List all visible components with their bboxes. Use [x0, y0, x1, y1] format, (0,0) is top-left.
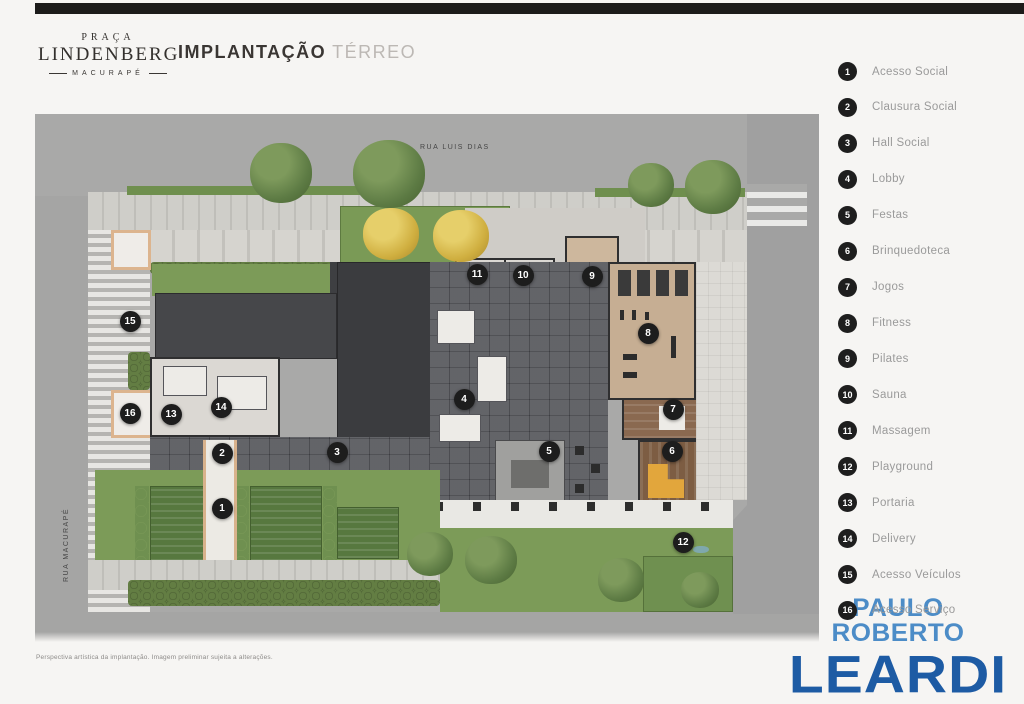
- legend-label: Jogos: [872, 281, 904, 293]
- legend-item-8: 8Fitness: [838, 314, 911, 333]
- gym-equipment: [645, 312, 649, 320]
- legend-label: Portaria: [872, 497, 915, 509]
- hedge-bottom: [128, 580, 440, 606]
- legend-item-14: 14Delivery: [838, 529, 916, 548]
- legend-item-3: 3Hall Social: [838, 134, 930, 153]
- tree-icon: [598, 558, 644, 602]
- brand-line2: LINDENBERG: [38, 44, 178, 66]
- legend-item-7: 7Jogos: [838, 278, 904, 297]
- tree-icon: [250, 143, 312, 203]
- page-title-secondary: TÉRREO: [332, 42, 416, 62]
- brand-rule-left: [49, 73, 67, 74]
- legend-label: Playground: [872, 461, 933, 473]
- legend-label: Acesso Serviço: [872, 604, 955, 616]
- legend-item-12: 12Playground: [838, 457, 933, 476]
- page-title: IMPLANTAÇÃOTÉRREO: [178, 42, 416, 63]
- legend-label: Acesso Social: [872, 66, 948, 78]
- gate-north: [111, 230, 151, 270]
- legend-number-badge: 5: [838, 206, 857, 225]
- legend-number-badge: 4: [838, 170, 857, 189]
- legend-item-4: 4Lobby: [838, 170, 905, 189]
- tree-icon: [628, 163, 674, 207]
- garden-bed: [150, 486, 205, 562]
- legend-number-badge: 10: [838, 385, 857, 404]
- legend-label: Acesso Veículos: [872, 569, 961, 581]
- plan-marker-5: 5: [539, 441, 560, 462]
- legend-number-badge: 3: [838, 134, 857, 153]
- entry-plaza: [150, 437, 430, 470]
- pergola-colonnade: [435, 500, 733, 528]
- brand-line3-text: MACURAPÉ: [72, 70, 144, 77]
- plaza-room-b: [477, 356, 507, 402]
- water-feature: [693, 546, 709, 553]
- plan-marker-7: 7: [663, 399, 684, 420]
- legend-number-badge: 1: [838, 62, 857, 81]
- gym-mat: [675, 270, 688, 296]
- tree-icon: [433, 210, 489, 262]
- brand-rule-right: [149, 73, 167, 74]
- crosswalk: [747, 184, 807, 226]
- gym-equipment: [623, 372, 637, 378]
- legend-item-11: 11Massagem: [838, 421, 931, 440]
- legend-number-badge: 14: [838, 529, 857, 548]
- garden-bush-row: [235, 486, 249, 562]
- development-logo: PRAÇA LINDENBERG MACURAPÉ: [38, 32, 178, 77]
- top-accent-bar: [35, 3, 1024, 14]
- gym-mat: [656, 270, 669, 296]
- legend-label: Hall Social: [872, 137, 930, 149]
- garden-bush-row: [135, 486, 149, 562]
- plan-marker-15: 15: [120, 311, 141, 332]
- plan-marker-3: 3: [327, 442, 348, 463]
- legend-item-10: 10Sauna: [838, 385, 907, 404]
- plan-marker-4: 4: [454, 389, 475, 410]
- garden-bed: [337, 507, 399, 559]
- page-title-primary: IMPLANTAÇÃO: [178, 42, 326, 62]
- tree-icon: [363, 208, 419, 260]
- legend-label: Lobby: [872, 173, 905, 185]
- legend-number-badge: 12: [838, 457, 857, 476]
- legend-item-9: 9Pilates: [838, 349, 909, 368]
- legend-label: Sauna: [872, 389, 907, 401]
- brand-line1: PRAÇA: [38, 32, 178, 43]
- plan-marker-12: 12: [673, 532, 694, 553]
- plan-marker-9: 9: [582, 266, 603, 287]
- festas-table: [591, 464, 600, 473]
- plaza-room-c: [439, 414, 481, 442]
- festas-table: [575, 484, 584, 493]
- brand-line3: MACURAPÉ: [38, 70, 178, 77]
- plan-bottom-fade: [35, 632, 819, 642]
- garden-bed: [250, 486, 322, 562]
- legend-item-16: 16Acesso Serviço: [838, 601, 955, 620]
- legend-number-badge: 6: [838, 242, 857, 261]
- plan-marker-2: 2: [212, 443, 233, 464]
- festas-table: [575, 446, 584, 455]
- plan-marker-6: 6: [662, 441, 683, 462]
- legend-item-1: 1Acesso Social: [838, 62, 948, 81]
- disclaimer-text: Perspectiva artística da implantação. Im…: [36, 654, 273, 661]
- plan-marker-1: 1: [212, 498, 233, 519]
- east-walkway: [696, 262, 747, 500]
- plan-marker-8: 8: [638, 323, 659, 344]
- tree-icon: [407, 532, 453, 576]
- portaria-room: [163, 366, 207, 396]
- legend-number-badge: 11: [838, 421, 857, 440]
- plan-marker-13: 13: [161, 404, 182, 425]
- tree-icon: [465, 536, 517, 584]
- gym-equipment: [620, 310, 624, 320]
- legend-item-5: 5Festas: [838, 206, 908, 225]
- legend-number-badge: 2: [838, 98, 857, 117]
- legend-number-badge: 7: [838, 278, 857, 297]
- legend-label: Delivery: [872, 533, 916, 545]
- garden-bush-row: [323, 486, 337, 562]
- plan-marker-16: 16: [120, 403, 141, 424]
- street-label-top: RUA LUIS DIAS: [420, 144, 490, 151]
- legend-number-badge: 9: [838, 349, 857, 368]
- legend-number-badge: 15: [838, 565, 857, 584]
- plan-marker-11: 11: [467, 264, 488, 285]
- plaza-room-a: [437, 310, 475, 344]
- legend-label: Brinquedoteca: [872, 245, 950, 257]
- hedge-left: [128, 352, 150, 390]
- gym-equipment: [632, 310, 636, 320]
- legend-number-badge: 13: [838, 493, 857, 512]
- plan-marker-10: 10: [513, 265, 534, 286]
- legend-item-6: 6Brinquedoteca: [838, 242, 950, 261]
- kitchen-island: [511, 460, 549, 488]
- legend-item-13: 13Portaria: [838, 493, 915, 512]
- legend-label: Fitness: [872, 317, 911, 329]
- gym-equipment: [671, 336, 676, 358]
- verge-strip-left: [127, 186, 362, 195]
- legend: 1Acesso Social2Clausura Social3Hall Soci…: [838, 62, 1024, 642]
- tree-icon: [685, 160, 741, 214]
- legend-label: Clausura Social: [872, 101, 957, 113]
- gym-mat: [618, 270, 631, 296]
- tower-footprint-west: [155, 293, 337, 359]
- legend-label: Massagem: [872, 425, 931, 437]
- street-label-left: RUA MACURAPÉ: [63, 486, 70, 582]
- plan-marker-14: 14: [211, 397, 232, 418]
- legend-label: Pilates: [872, 353, 909, 365]
- tree-icon: [681, 572, 719, 608]
- legend-label: Festas: [872, 209, 908, 221]
- gym-equipment: [623, 354, 637, 360]
- gym-mat: [637, 270, 650, 296]
- tower-footprint-center: [337, 262, 437, 439]
- legend-item-15: 15Acesso Veículos: [838, 565, 961, 584]
- lawn-upper: [152, 264, 360, 296]
- legend-number-badge: 8: [838, 314, 857, 333]
- legend-number-badge: 16: [838, 601, 857, 620]
- legend-item-2: 2Clausura Social: [838, 98, 957, 117]
- site-plan: RUA LUIS DIAS RUA MACURAPÉ: [35, 114, 819, 642]
- tree-icon: [353, 140, 425, 208]
